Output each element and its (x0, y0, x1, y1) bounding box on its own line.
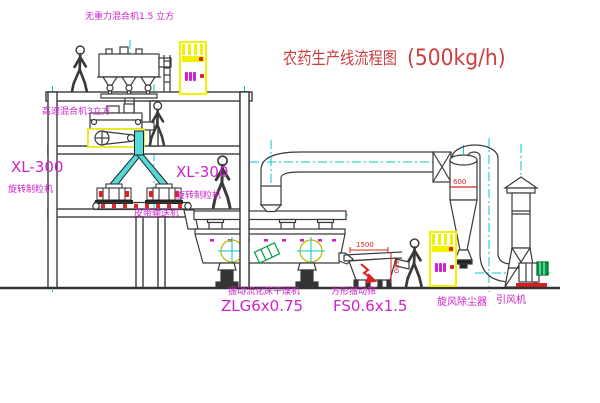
fan-motor (537, 262, 548, 275)
indicator-lights-icon (185, 72, 196, 81)
label-cyclone: 旋风除尘器 (437, 298, 487, 308)
label-granulator-right-model: XL-300 (176, 165, 228, 180)
red-button-icon[interactable] (450, 265, 454, 269)
air-inlet-stubs (208, 220, 334, 230)
label-sieve-name: 方形振动筛 (331, 288, 376, 297)
label-granulator-right-name: 旋转制粒机 (176, 192, 221, 201)
label-high-speed-mixer: 高速混合机3立方 (42, 108, 111, 117)
dim-cyclone: 600 (453, 179, 466, 186)
red-button-icon[interactable] (200, 74, 204, 78)
label-dryer-name: 振动流化床干燥机 (228, 288, 300, 297)
title-text: 农药生产线流程图 (283, 46, 397, 70)
red-button-icon[interactable] (199, 57, 203, 61)
diagram-title: 农药生产线流程图 (500kg/h) (283, 46, 514, 71)
dim-sieve-width: 1500 (356, 242, 374, 249)
building-column-front (240, 92, 249, 288)
granulators (95, 184, 183, 204)
conveyor-rollers (101, 204, 182, 208)
label-belt-conveyor: 皮带输送机 (134, 210, 179, 219)
dim-sieve-height: 600 (392, 260, 399, 273)
label-gravity-free-mixer: 无重力混合机1.5 立方 (85, 13, 174, 22)
induced-draft-fan (516, 262, 548, 288)
exhaust-duct (261, 152, 434, 186)
cabinet-vents (182, 44, 204, 55)
discharge-funnels (103, 77, 155, 94)
cabinet-vents (432, 234, 454, 245)
red-button-icon[interactable] (449, 247, 453, 251)
label-fan: 引风机 (496, 296, 526, 306)
control-cabinet-ground (429, 231, 457, 287)
title-capacity: (500kg/h) (407, 46, 506, 71)
label-dryer-model: ZLG6x0.75 (221, 299, 303, 314)
label-sieve-model: FS0.6x1.5 (333, 299, 407, 314)
process-flow-diagram: 农药生产线流程图 (500kg/h) 无重力混合机1.5 立方 高速混合机3立方… (0, 0, 600, 403)
granulator-left (95, 184, 133, 204)
ladder (164, 55, 170, 92)
person-figure (72, 46, 87, 91)
label-granulator-left-model: XL-300 (11, 160, 63, 175)
label-granulator-left-name: 旋转制粒机 (8, 186, 53, 195)
indicator-lights-icon (435, 263, 446, 272)
dryer-legs (216, 263, 318, 287)
fluid-bed-dryer (184, 186, 353, 287)
control-cabinet-top (179, 41, 207, 95)
